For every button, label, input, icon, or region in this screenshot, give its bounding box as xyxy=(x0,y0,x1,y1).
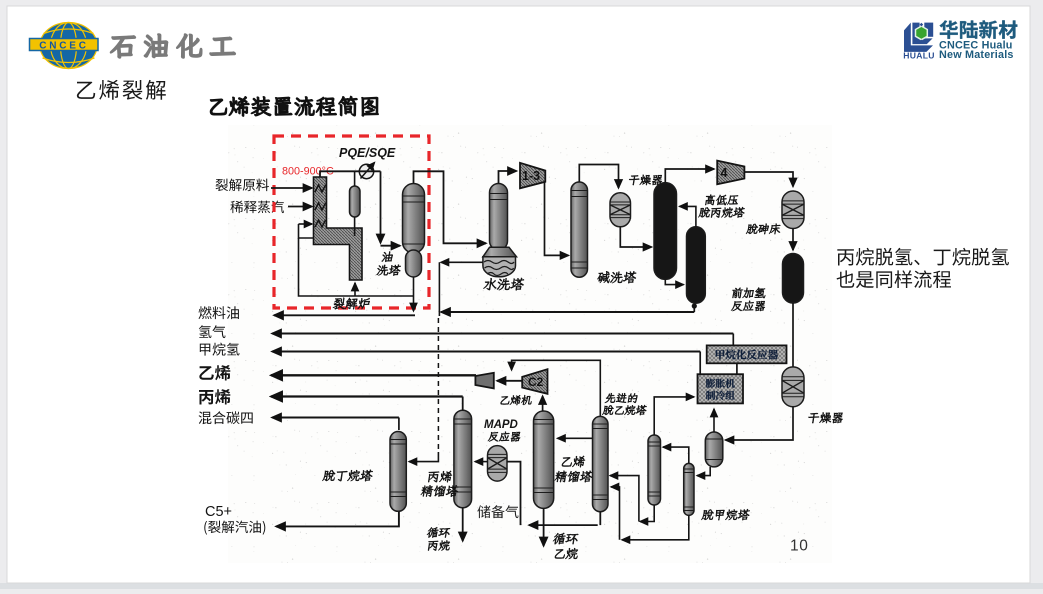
svg-text:4: 4 xyxy=(721,166,728,180)
svg-text:HUALU: HUALU xyxy=(903,51,935,61)
svg-text:10: 10 xyxy=(790,538,808,555)
svg-text:1-3: 1-3 xyxy=(522,169,540,183)
svg-text:MAPD: MAPD xyxy=(484,419,518,431)
svg-text:C2: C2 xyxy=(528,375,544,389)
svg-text:CNCEC: CNCEC xyxy=(39,40,89,51)
svg-text:New Materials: New Materials xyxy=(939,49,1014,61)
svg-text:PQE/SQE: PQE/SQE xyxy=(339,146,396,160)
svg-text:C5+: C5+ xyxy=(205,504,232,520)
